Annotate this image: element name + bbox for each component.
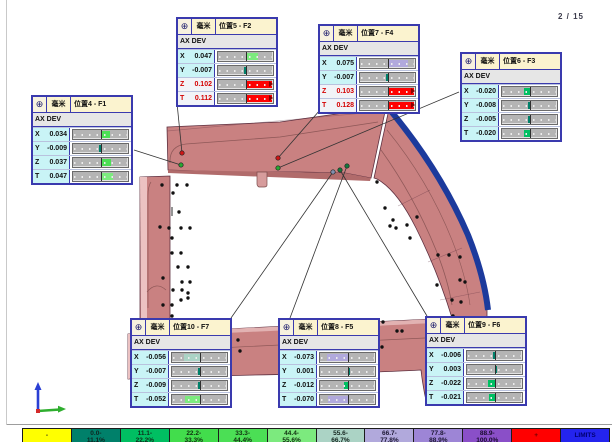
deviation-bar bbox=[72, 129, 129, 140]
axis-value-cell: T -0.052 bbox=[132, 393, 169, 406]
deviation-bar bbox=[466, 364, 523, 375]
measurement-callout[interactable]: ⊕ 毫米 位置4 - F1 AX DEV X 0.034 Y -0.009 Z … bbox=[31, 95, 133, 185]
legend-bucket[interactable]: LIMITS bbox=[561, 428, 610, 442]
axis-letter: Y bbox=[429, 366, 434, 373]
axis-value-cell: X -0.073 bbox=[280, 351, 317, 364]
axis-row: Y 0.001 bbox=[280, 364, 378, 378]
measurement-callout[interactable]: ⊕ 毫米 位置6 - F3 AX DEV X -0.020 Y -0.008 Z… bbox=[460, 52, 562, 142]
axis-value-cell: Y -0.007 bbox=[132, 365, 169, 378]
axis-letter: Y bbox=[282, 368, 287, 375]
unit-label: 毫米 bbox=[294, 320, 318, 335]
table-header: AX DEV bbox=[132, 336, 230, 350]
axis-value-cell: Y -0.007 bbox=[178, 64, 215, 77]
deviation-bar bbox=[319, 352, 376, 363]
window-edge bbox=[6, 0, 7, 425]
callout-header: ⊕ 毫米 位置8 - F5 bbox=[280, 320, 378, 336]
axis-value-cell: Z 0.037 bbox=[33, 156, 70, 169]
unit-label: 毫米 bbox=[192, 19, 216, 34]
axis-letter: Z bbox=[35, 159, 39, 166]
axis-value-cell: Y -0.007 bbox=[320, 71, 357, 84]
axis-value: -0.022 bbox=[441, 380, 461, 387]
deviation-bar bbox=[319, 394, 376, 405]
deviation-bar bbox=[501, 114, 558, 125]
axis-value: -0.009 bbox=[47, 145, 67, 152]
legend-bucket[interactable]: 22.2-33.3% bbox=[170, 428, 219, 442]
axis-value: -0.021 bbox=[441, 394, 461, 401]
axis-value: -0.005 bbox=[476, 116, 496, 123]
axis-value-cell: T 0.128 bbox=[320, 99, 357, 112]
callout-title: 位置10 - F7 bbox=[170, 320, 230, 335]
axis-value-cell: Z -0.009 bbox=[132, 379, 169, 392]
callout-title: 位置8 - F5 bbox=[318, 320, 378, 335]
axis-row: Y -0.009 bbox=[33, 141, 131, 155]
axis-value: -0.070 bbox=[294, 396, 314, 403]
deviation-bar bbox=[217, 79, 274, 90]
measurement-point bbox=[345, 164, 349, 168]
target-icon[interactable]: ⊕ bbox=[178, 19, 192, 34]
axis-value-cell: T 0.047 bbox=[33, 170, 70, 183]
axis-letter: T bbox=[429, 394, 433, 401]
axis-value-cell: T -0.020 bbox=[462, 127, 499, 140]
axis-row: T -0.021 bbox=[427, 390, 525, 404]
axis-row: Z -0.005 bbox=[462, 112, 560, 126]
axis-row: T 0.047 bbox=[33, 169, 131, 183]
deviation-bar bbox=[359, 100, 416, 111]
callout-header: ⊕ 毫米 位置6 - F3 bbox=[462, 54, 560, 70]
axis-value-cell: X 0.047 bbox=[178, 50, 215, 63]
axis-row: Y -0.008 bbox=[462, 98, 560, 112]
axis-value-cell: Y -0.009 bbox=[33, 142, 70, 155]
axis-letter: T bbox=[35, 173, 39, 180]
deviation-bar bbox=[359, 58, 416, 69]
deviation-bar bbox=[171, 352, 228, 363]
axis-row: X 0.075 bbox=[320, 56, 418, 70]
table-header: AX DEV bbox=[33, 113, 131, 127]
axis-value: -0.007 bbox=[334, 74, 354, 81]
axis-letter: X bbox=[464, 88, 469, 95]
deviation-bar bbox=[72, 143, 129, 154]
color-scale-legend: -0.0-11.1%11.1-22.2%22.2-33.3%33.3-44.4%… bbox=[22, 428, 610, 442]
legend-bucket[interactable]: + bbox=[512, 428, 561, 442]
measurement-point bbox=[331, 170, 335, 174]
axis-letter: Z bbox=[282, 382, 286, 389]
axis-row: X 0.034 bbox=[33, 127, 131, 141]
measurement-callout[interactable]: ⊕ 毫米 位置5 - F2 AX DEV X 0.047 Y -0.007 Z … bbox=[176, 17, 278, 107]
axis-letter: Y bbox=[134, 368, 139, 375]
axis-row: Y -0.007 bbox=[132, 364, 230, 378]
unit-label: 毫米 bbox=[334, 26, 358, 41]
axis-value: -0.012 bbox=[294, 382, 314, 389]
legend-bucket[interactable]: 88.9-100.0% bbox=[463, 428, 512, 442]
legend-bucket[interactable]: 11.1-22.2% bbox=[121, 428, 170, 442]
deviation-bar bbox=[217, 93, 274, 104]
measurement-callout[interactable]: ⊕ 毫米 位置8 - F5 AX DEV X -0.073 Y 0.001 Z … bbox=[278, 318, 380, 408]
measurement-point bbox=[180, 151, 184, 155]
axis-value: 0.128 bbox=[336, 102, 354, 109]
axis-value: -0.009 bbox=[146, 382, 166, 389]
legend-bucket[interactable]: 0.0-11.1% bbox=[72, 428, 121, 442]
axis-value: 0.003 bbox=[443, 366, 461, 373]
callout-title: 位置6 - F3 bbox=[500, 54, 560, 69]
axis-row: Y 0.003 bbox=[427, 362, 525, 376]
legend-bucket[interactable]: 44.4-55.6% bbox=[268, 428, 317, 442]
axis-value-cell: T 0.112 bbox=[178, 92, 215, 105]
axis-value-cell: Z -0.012 bbox=[280, 379, 317, 392]
unit-label: 毫米 bbox=[146, 320, 170, 335]
deviation-bar bbox=[72, 171, 129, 182]
deviation-bar bbox=[171, 366, 228, 377]
deviation-bar bbox=[319, 366, 376, 377]
target-icon[interactable]: ⊕ bbox=[427, 318, 441, 333]
axis-letter: X bbox=[134, 354, 139, 361]
axis-row: Y -0.007 bbox=[320, 70, 418, 84]
axis-value-cell: X -0.020 bbox=[462, 85, 499, 98]
axis-row: X 0.047 bbox=[178, 49, 276, 63]
axis-value: 0.102 bbox=[194, 81, 212, 88]
callout-title: 位置4 - F1 bbox=[71, 97, 131, 112]
callout-header: ⊕ 毫米 位置10 - F7 bbox=[132, 320, 230, 336]
axis-row: X -0.006 bbox=[427, 348, 525, 362]
axis-row: Z -0.012 bbox=[280, 378, 378, 392]
axis-row: X -0.020 bbox=[462, 84, 560, 98]
target-icon[interactable]: ⊕ bbox=[462, 54, 476, 69]
axis-row: X -0.056 bbox=[132, 350, 230, 364]
callout-header: ⊕ 毫米 位置9 - F6 bbox=[427, 318, 525, 334]
callout-title: 位置9 - F6 bbox=[465, 318, 525, 333]
axis-value: -0.056 bbox=[146, 354, 166, 361]
axis-value: -0.020 bbox=[476, 130, 496, 137]
table-header: AX DEV bbox=[427, 334, 525, 348]
axis-value-cell: T -0.021 bbox=[427, 391, 464, 404]
axis-value-cell: X 0.075 bbox=[320, 57, 357, 70]
axis-letter: T bbox=[464, 130, 468, 137]
axis-letter: Y bbox=[180, 67, 185, 74]
axis-row: Z 0.102 bbox=[178, 77, 276, 91]
legend-bucket[interactable]: 33.3-44.4% bbox=[219, 428, 268, 442]
deviation-bar bbox=[359, 86, 416, 97]
deviation-bar bbox=[171, 394, 228, 405]
axis-value: 0.047 bbox=[49, 173, 67, 180]
axis-letter: Y bbox=[464, 102, 469, 109]
axis-letter: X bbox=[282, 354, 287, 361]
deviation-bar bbox=[217, 65, 274, 76]
deviation-bar bbox=[217, 51, 274, 62]
measurement-point bbox=[338, 168, 342, 172]
axis-value-cell: Y 0.001 bbox=[280, 365, 317, 378]
axis-row: T -0.052 bbox=[132, 392, 230, 406]
target-icon[interactable]: ⊕ bbox=[320, 26, 334, 41]
deviation-bar bbox=[501, 100, 558, 111]
axis-value: 0.034 bbox=[49, 131, 67, 138]
deviation-bar bbox=[501, 86, 558, 97]
axis-value: 0.047 bbox=[194, 53, 212, 60]
axis-value: 0.037 bbox=[49, 159, 67, 166]
legend-bucket[interactable]: 55.6-66.7% bbox=[317, 428, 366, 442]
table-header: AX DEV bbox=[462, 70, 560, 84]
axis-value-cell: T -0.070 bbox=[280, 393, 317, 406]
axis-value: 0.103 bbox=[336, 88, 354, 95]
axis-letter: Y bbox=[322, 74, 327, 81]
axis-value: -0.020 bbox=[476, 88, 496, 95]
callout-header: ⊕ 毫米 位置5 - F2 bbox=[178, 19, 276, 35]
axis-row: Z 0.103 bbox=[320, 84, 418, 98]
axis-value-cell: Y -0.008 bbox=[462, 99, 499, 112]
axis-row: Z 0.037 bbox=[33, 155, 131, 169]
axis-row: Z -0.022 bbox=[427, 376, 525, 390]
axis-letter: X bbox=[429, 352, 434, 359]
table-header: AX DEV bbox=[320, 42, 418, 56]
legend-bucket[interactable]: - bbox=[22, 428, 72, 442]
axis-letter: T bbox=[282, 396, 286, 403]
axis-letter: Z bbox=[429, 380, 433, 387]
axis-value-cell: Y 0.003 bbox=[427, 363, 464, 376]
axis-value: -0.007 bbox=[192, 67, 212, 74]
deviation-bar bbox=[466, 392, 523, 403]
deviation-bar bbox=[359, 72, 416, 83]
axis-value-cell: Z 0.103 bbox=[320, 85, 357, 98]
axis-value: -0.073 bbox=[294, 354, 314, 361]
axis-letter: Y bbox=[35, 145, 40, 152]
axis-letter: T bbox=[134, 396, 138, 403]
axis-row: T -0.020 bbox=[462, 126, 560, 140]
target-icon[interactable]: ⊕ bbox=[33, 97, 47, 112]
deviation-bar bbox=[72, 157, 129, 168]
axis-letter: T bbox=[322, 102, 326, 109]
unit-label: 毫米 bbox=[441, 318, 465, 333]
measurement-point bbox=[179, 163, 183, 167]
legend-bucket[interactable]: 77.8-88.9% bbox=[414, 428, 463, 442]
target-icon[interactable]: ⊕ bbox=[132, 320, 146, 335]
axis-letter: Z bbox=[464, 116, 468, 123]
axis-value-cell: X -0.056 bbox=[132, 351, 169, 364]
axis-value: -0.007 bbox=[146, 368, 166, 375]
coordinate-triad-icon bbox=[35, 382, 67, 413]
page-indicator: 2 / 15 bbox=[558, 12, 584, 21]
callout-header: ⊕ 毫米 位置7 - F4 bbox=[320, 26, 418, 42]
measurement-callout[interactable]: ⊕ 毫米 位置10 - F7 AX DEV X -0.056 Y -0.007 … bbox=[130, 318, 232, 408]
axis-value-cell: Z 0.102 bbox=[178, 78, 215, 91]
app-canvas: 2 / 15 ⊕ 毫米 位置4 - F1 AX DEV X 0.034 Y -0… bbox=[0, 0, 612, 442]
deviation-bar bbox=[466, 378, 523, 389]
measurement-point bbox=[276, 166, 280, 170]
axis-value: -0.008 bbox=[476, 102, 496, 109]
axis-value: -0.052 bbox=[146, 396, 166, 403]
axis-letter: Z bbox=[322, 88, 326, 95]
axis-letter: Z bbox=[134, 382, 138, 389]
measurement-callout[interactable]: ⊕ 毫米 位置7 - F4 AX DEV X 0.075 Y -0.007 Z … bbox=[318, 24, 420, 114]
deviation-bar bbox=[501, 128, 558, 139]
deviation-bar bbox=[319, 380, 376, 391]
axis-value-cell: X -0.006 bbox=[427, 349, 464, 362]
measurement-point bbox=[276, 156, 280, 160]
legend-bucket[interactable]: 66.7-77.8% bbox=[365, 428, 414, 442]
axis-value-cell: Z -0.022 bbox=[427, 377, 464, 390]
axis-value: -0.006 bbox=[441, 352, 461, 359]
axis-row: T 0.112 bbox=[178, 91, 276, 105]
axis-letter: X bbox=[322, 60, 327, 67]
axis-value: 0.001 bbox=[296, 368, 314, 375]
axis-value: 0.112 bbox=[195, 95, 212, 102]
part-tab bbox=[257, 172, 267, 187]
axis-row: Z -0.009 bbox=[132, 378, 230, 392]
target-icon[interactable]: ⊕ bbox=[280, 320, 294, 335]
deviation-bar bbox=[466, 350, 523, 361]
footer-separator bbox=[7, 424, 612, 425]
axis-letter: X bbox=[35, 131, 40, 138]
callout-title: 位置5 - F2 bbox=[216, 19, 276, 34]
table-header: AX DEV bbox=[280, 336, 378, 350]
axis-row: X -0.073 bbox=[280, 350, 378, 364]
axis-value-cell: X 0.034 bbox=[33, 128, 70, 141]
axis-value-cell: Z -0.005 bbox=[462, 113, 499, 126]
axis-letter: Z bbox=[180, 81, 184, 88]
table-header: AX DEV bbox=[178, 35, 276, 49]
axis-row: T -0.070 bbox=[280, 392, 378, 406]
callout-title: 位置7 - F4 bbox=[358, 26, 418, 41]
unit-label: 毫米 bbox=[476, 54, 500, 69]
axis-row: T 0.128 bbox=[320, 98, 418, 112]
axis-row: Y -0.007 bbox=[178, 63, 276, 77]
unit-label: 毫米 bbox=[47, 97, 71, 112]
deviation-bar bbox=[171, 380, 228, 391]
axis-letter: X bbox=[180, 53, 185, 60]
measurement-callout[interactable]: ⊕ 毫米 位置9 - F6 AX DEV X -0.006 Y 0.003 Z … bbox=[425, 316, 527, 406]
callout-header: ⊕ 毫米 位置4 - F1 bbox=[33, 97, 131, 113]
axis-value: 0.075 bbox=[336, 60, 354, 67]
axis-letter: T bbox=[180, 95, 184, 102]
